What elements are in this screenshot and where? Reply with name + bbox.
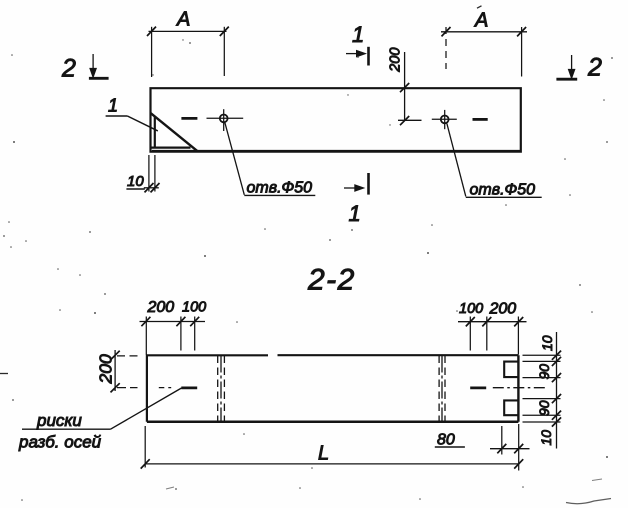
svg-text:L: L xyxy=(318,443,329,465)
svg-text:2: 2 xyxy=(61,55,76,83)
svg-text:риски: риски xyxy=(36,411,82,430)
svg-text:100: 100 xyxy=(459,301,483,317)
svg-text:отв.Ф50: отв.Ф50 xyxy=(470,182,536,199)
svg-text:2: 2 xyxy=(587,54,602,82)
svg-text:90: 90 xyxy=(536,400,552,416)
svg-text:100: 100 xyxy=(182,300,206,316)
svg-text:10: 10 xyxy=(538,430,554,446)
svg-text:90: 90 xyxy=(536,364,552,380)
svg-text:10: 10 xyxy=(539,335,555,351)
svg-text:1: 1 xyxy=(352,22,364,47)
svg-text:A: A xyxy=(176,9,190,31)
svg-text:A: A xyxy=(474,10,488,32)
svg-text:80: 80 xyxy=(437,432,455,449)
svg-text:отв.Ф50: отв.Ф50 xyxy=(247,180,313,197)
svg-text:1: 1 xyxy=(108,96,118,116)
svg-text:200: 200 xyxy=(147,299,175,316)
svg-text:200: 200 xyxy=(96,354,116,384)
svg-text:1: 1 xyxy=(349,201,361,226)
svg-text:10: 10 xyxy=(127,173,144,190)
svg-text:200: 200 xyxy=(489,301,517,318)
svg-text:разб. осей: разб. осей xyxy=(18,433,102,452)
svg-text:200: 200 xyxy=(388,48,404,73)
svg-text:2-2: 2-2 xyxy=(307,264,356,297)
